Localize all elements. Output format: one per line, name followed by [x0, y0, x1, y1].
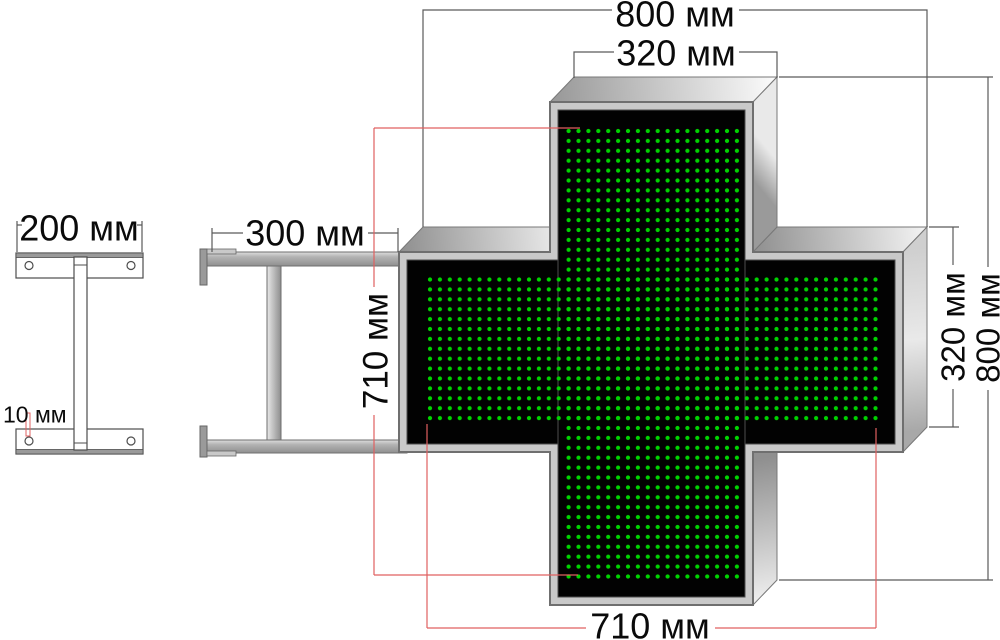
label-overall-width: 800 мм — [615, 0, 735, 35]
cross-side-face-right-arm — [903, 227, 927, 452]
mount-post — [267, 266, 281, 440]
cross-side-face-upper — [753, 77, 777, 252]
bracket-hole — [127, 437, 135, 445]
label-overall-height: 800 мм — [970, 273, 1000, 383]
bracket-hole — [25, 262, 33, 270]
cross-top-face-top-arm — [550, 77, 777, 102]
label-arm-width: 320 мм — [616, 33, 736, 74]
bracket-vertical-bar — [74, 257, 87, 450]
bracket-hole — [127, 262, 135, 270]
label-arm-height: 320 мм — [935, 272, 972, 382]
label-led-width: 710 мм — [590, 606, 710, 640]
label-bracket-width: 200 мм — [19, 208, 139, 249]
diagram-canvas: 800 мм 320 мм 300 мм 200 мм 710 мм 710 м… — [0, 0, 1000, 640]
wall-flange-bottom-lip — [207, 451, 236, 456]
label-hole-diameter: 10 мм — [3, 402, 67, 428]
pharmacy-cross-sign — [399, 77, 927, 605]
led-matrix-vertical — [563, 126, 743, 580]
led-matrix — [424, 126, 882, 580]
technical-diagram: 800 мм 320 мм 300 мм 200 мм 710 мм 710 м… — [0, 0, 1000, 640]
cross-top-face-left-arm — [399, 227, 574, 252]
label-led-height: 710 мм — [356, 293, 395, 409]
wall-flange-top-lip — [207, 249, 236, 254]
wall-flange-top — [200, 249, 207, 285]
cross-top-face-right-arm — [753, 227, 927, 252]
label-arm-length: 300 мм — [245, 213, 365, 254]
wall-flange-bottom — [200, 426, 207, 457]
cross-side-face-lower — [753, 427, 777, 605]
bracket-hole — [25, 437, 33, 445]
